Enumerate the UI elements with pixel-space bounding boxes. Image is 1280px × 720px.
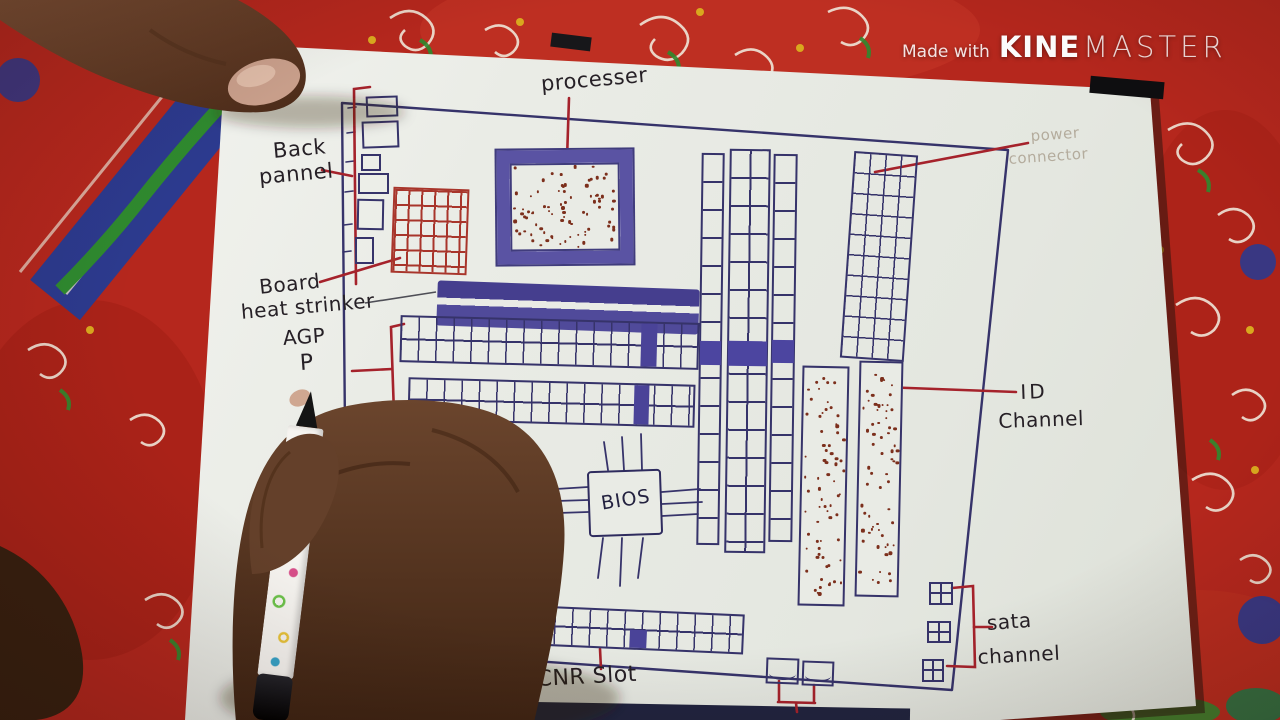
label-agp: AGP [282, 323, 326, 350]
agp-slot [399, 315, 699, 370]
slot-key [700, 341, 721, 365]
watermark-prefix: Made with [902, 42, 990, 62]
pci-slot [407, 377, 695, 427]
watermark: Made with KINE MASTER [902, 30, 1227, 64]
label-cnr-slot: CNR Slot [536, 662, 637, 692]
label-id-channel-2: Channel [998, 406, 1084, 433]
label-pci-partial: P [299, 350, 314, 376]
back-panel-port [357, 199, 385, 230]
label-id-channel-1: ID [1020, 379, 1048, 404]
slot-key [728, 341, 767, 367]
back-panel-port [361, 154, 381, 171]
slot-key [640, 323, 657, 366]
back-panel-port [362, 120, 400, 148]
back-panel-port [358, 173, 389, 194]
processor-dots [510, 163, 621, 252]
slot-key [629, 630, 647, 649]
ide-dots [857, 363, 902, 596]
pen-tip [288, 389, 328, 429]
sata-connector [922, 659, 944, 682]
photo-scene: BIOS processer Back pannel Board heat st… [0, 0, 1280, 720]
back-panel-port [366, 95, 399, 117]
label-power-pencil-1: power [1030, 124, 1080, 145]
slot-key [633, 385, 649, 424]
slot-key [772, 340, 794, 363]
sata-connector [927, 621, 951, 643]
ide-channel-bar [797, 366, 849, 607]
back-panel-port [355, 237, 374, 264]
ide-dots [800, 368, 848, 605]
front-connector [802, 660, 835, 686]
ram-slot [724, 149, 771, 554]
bios-label: BIOS [600, 485, 652, 514]
watermark-brand-light: MASTER [1083, 30, 1226, 64]
sata-connector [929, 582, 953, 605]
processor-chip [497, 149, 634, 264]
bios-chip: BIOS [587, 469, 663, 538]
front-connector [766, 657, 800, 684]
label-sata-1: sata [986, 608, 1032, 635]
socket-grid [391, 187, 470, 276]
watermark-brand-bold: KINE [999, 30, 1080, 64]
label-sata-2: channel [977, 641, 1061, 669]
pen-cap [252, 673, 293, 720]
ide-channel-bar [855, 361, 904, 598]
